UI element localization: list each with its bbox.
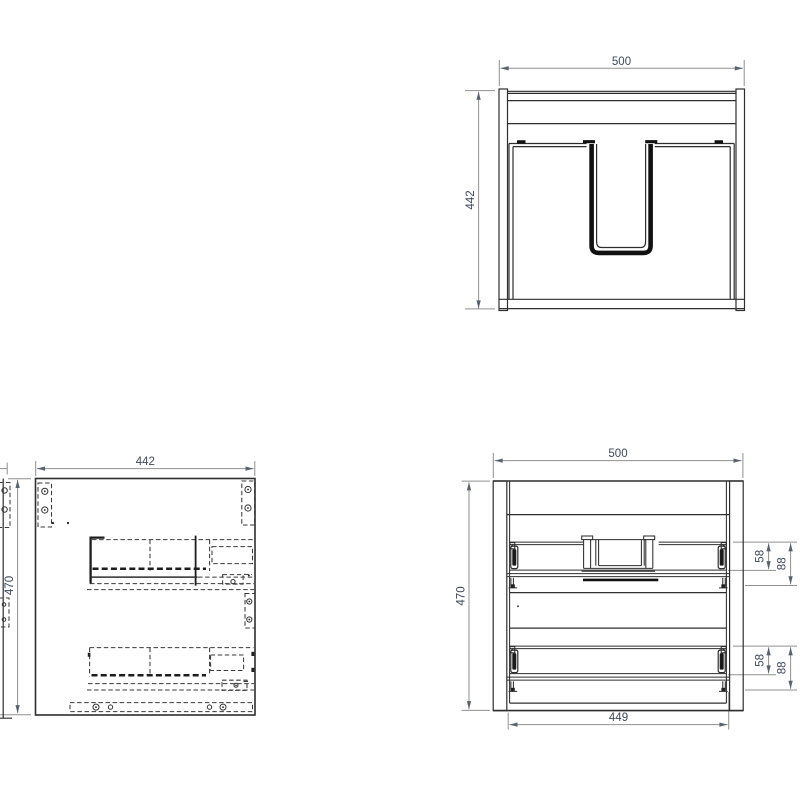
side-bottom-strip bbox=[70, 703, 253, 712]
drawing-page: 500 442 442 470 bbox=[0, 0, 800, 800]
front-lower-drawer bbox=[507, 646, 730, 691]
plan-inner-walls bbox=[509, 144, 734, 300]
upper-drawer-total-height-label: 88 bbox=[776, 557, 788, 570]
technical-drawing: 500 442 442 470 bbox=[0, 0, 800, 800]
lower-drawer-side-height-label: 58 bbox=[755, 654, 767, 667]
front-upper-drawer bbox=[507, 536, 730, 588]
side-view-body bbox=[36, 479, 256, 716]
side-dowel-mark bbox=[67, 522, 69, 524]
side-upper-drawer bbox=[87, 536, 254, 590]
lower-drawer-feet bbox=[509, 681, 728, 691]
side-top-left-bracket bbox=[38, 483, 52, 527]
plan-inner-top-edge bbox=[509, 144, 734, 147]
front-view-body bbox=[493, 481, 743, 711]
plan-back-rail-lines bbox=[508, 91, 737, 123]
front-top-bottom-edges bbox=[493, 481, 743, 711]
front-left-side-panel bbox=[493, 481, 507, 711]
front-rails bbox=[507, 515, 730, 704]
side-lower-drawer bbox=[87, 648, 254, 691]
plan-width-dim-label: 500 bbox=[612, 56, 631, 68]
plan-view: 500 442 bbox=[465, 56, 745, 311]
side-width-dim-label: 442 bbox=[136, 456, 155, 468]
front-inner-width-dim-label: 449 bbox=[609, 712, 628, 724]
upper-drawer-siphon-cutout bbox=[582, 536, 656, 571]
front-width-dim-label: 500 bbox=[608, 448, 627, 460]
plan-u-cutout-inner-line bbox=[597, 144, 646, 248]
upper-drawer-side-height-label: 58 bbox=[755, 550, 767, 563]
side-cabinet-outline bbox=[36, 479, 256, 716]
plan-plumbing-u-cutout bbox=[592, 144, 651, 253]
plan-view-body bbox=[499, 89, 745, 311]
lower-drawer-total-height-label: 88 bbox=[776, 662, 788, 675]
plan-left-side-panel bbox=[499, 89, 508, 311]
side-height-dim-label: 470 bbox=[4, 576, 16, 595]
plan-right-side-panel bbox=[736, 89, 745, 311]
front-height-dim-label: 470 bbox=[456, 586, 468, 605]
side-mid-right-bracket bbox=[245, 594, 255, 629]
front-view: 500 470 449 58 88 58 88 bbox=[456, 448, 797, 730]
side-view-front-strip bbox=[0, 479, 12, 719]
side-view: 442 470 bbox=[0, 456, 255, 718]
plan-height-dim-label: 442 bbox=[465, 190, 477, 209]
side-top-right-bracket bbox=[242, 481, 255, 525]
side-dowel-mark bbox=[52, 522, 54, 524]
front-right-side-panel bbox=[730, 481, 744, 711]
plan-front-edge bbox=[499, 299, 745, 308]
